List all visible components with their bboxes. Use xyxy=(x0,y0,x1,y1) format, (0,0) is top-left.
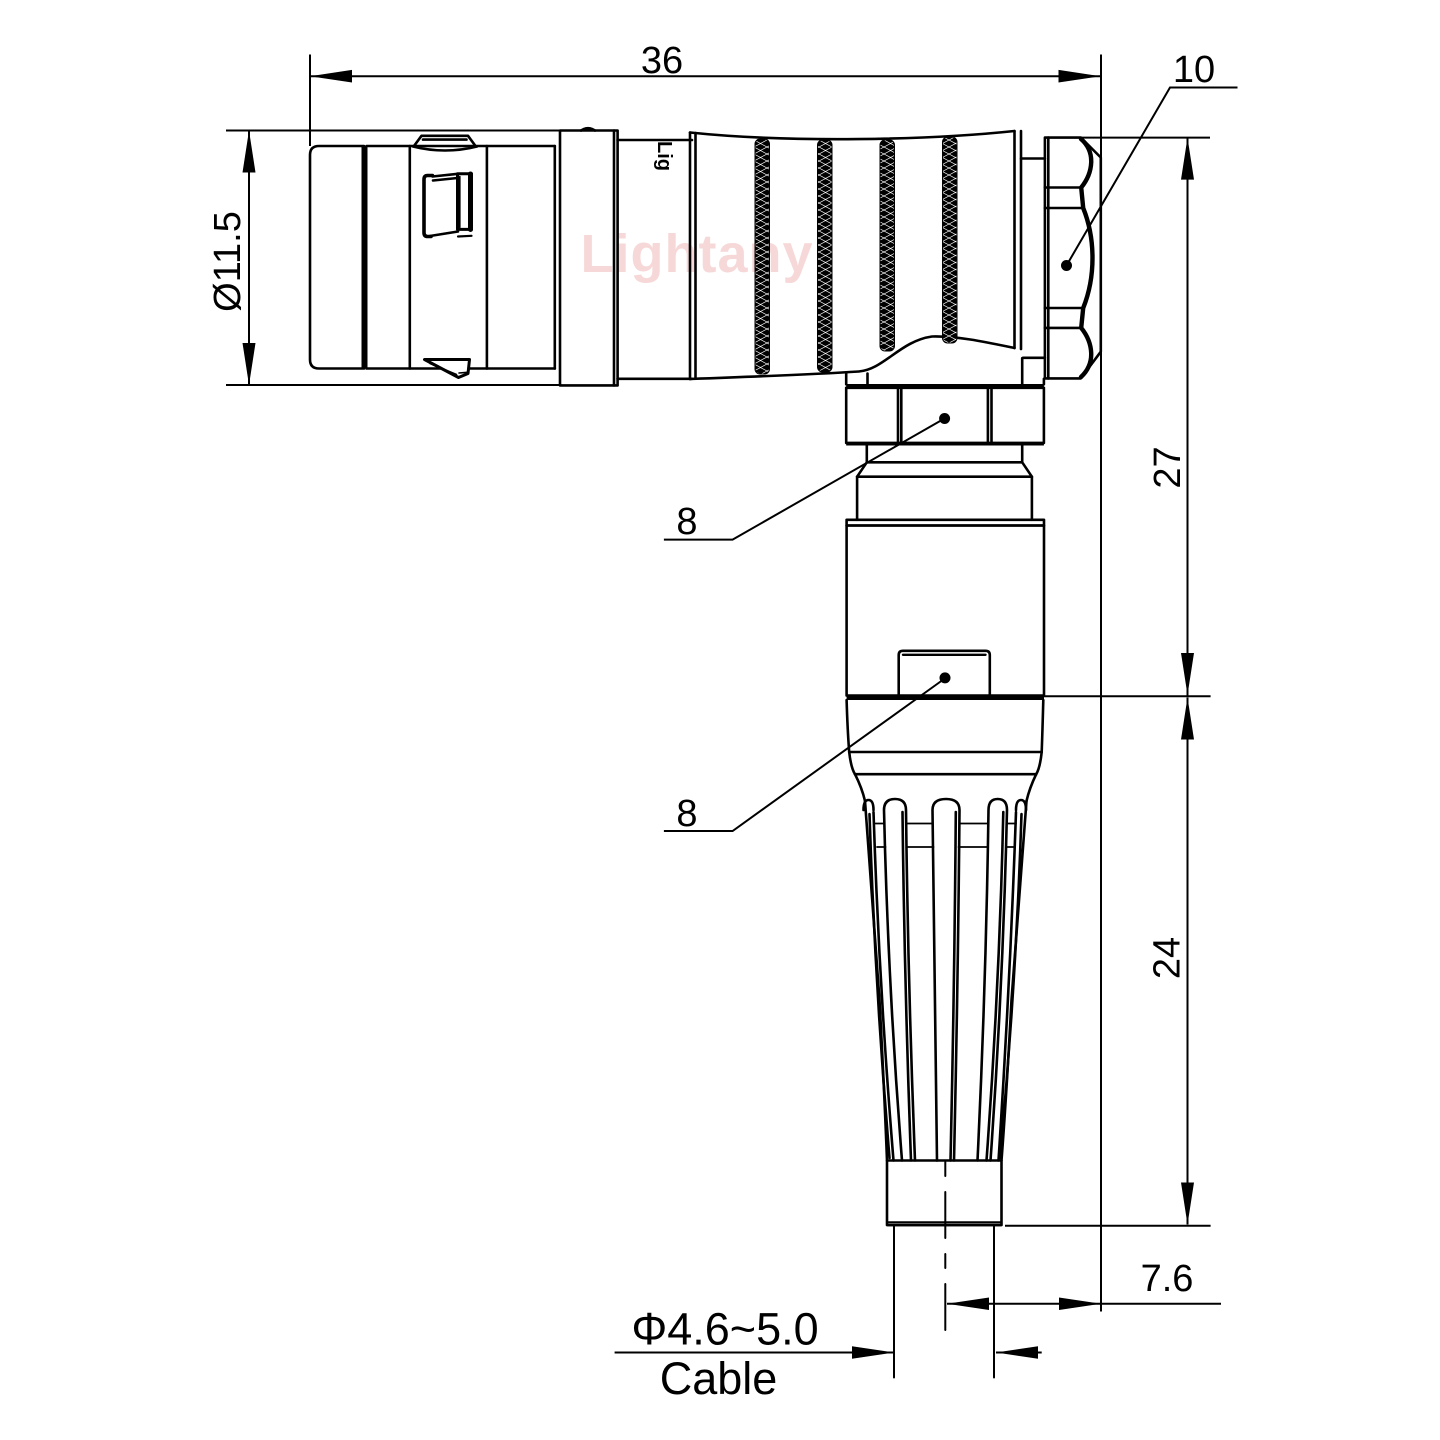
svg-text:8: 8 xyxy=(676,501,697,543)
svg-text:Lig: Lig xyxy=(653,141,675,171)
svg-text:36: 36 xyxy=(641,40,683,82)
svg-text:27: 27 xyxy=(1147,446,1189,488)
svg-text:10: 10 xyxy=(1173,49,1215,91)
svg-text:24: 24 xyxy=(1147,937,1189,979)
svg-text:Φ4.6~5.0: Φ4.6~5.0 xyxy=(631,1304,818,1355)
svg-text:Ø11.5: Ø11.5 xyxy=(207,211,249,312)
svg-text:8: 8 xyxy=(676,793,697,835)
svg-text:Cable: Cable xyxy=(660,1353,778,1404)
svg-text:7.6: 7.6 xyxy=(1141,1258,1194,1300)
svg-text:Lightany: Lightany xyxy=(581,224,814,284)
